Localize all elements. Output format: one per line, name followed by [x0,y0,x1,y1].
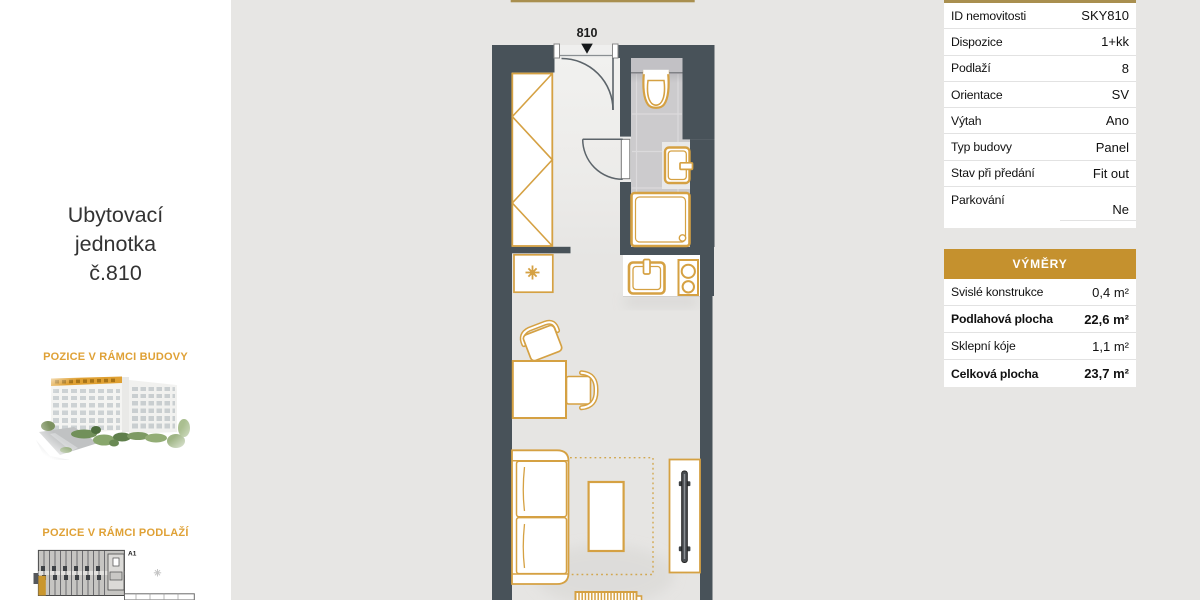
svg-text:810: 810 [577,26,598,40]
svg-text:A1: A1 [128,551,137,558]
